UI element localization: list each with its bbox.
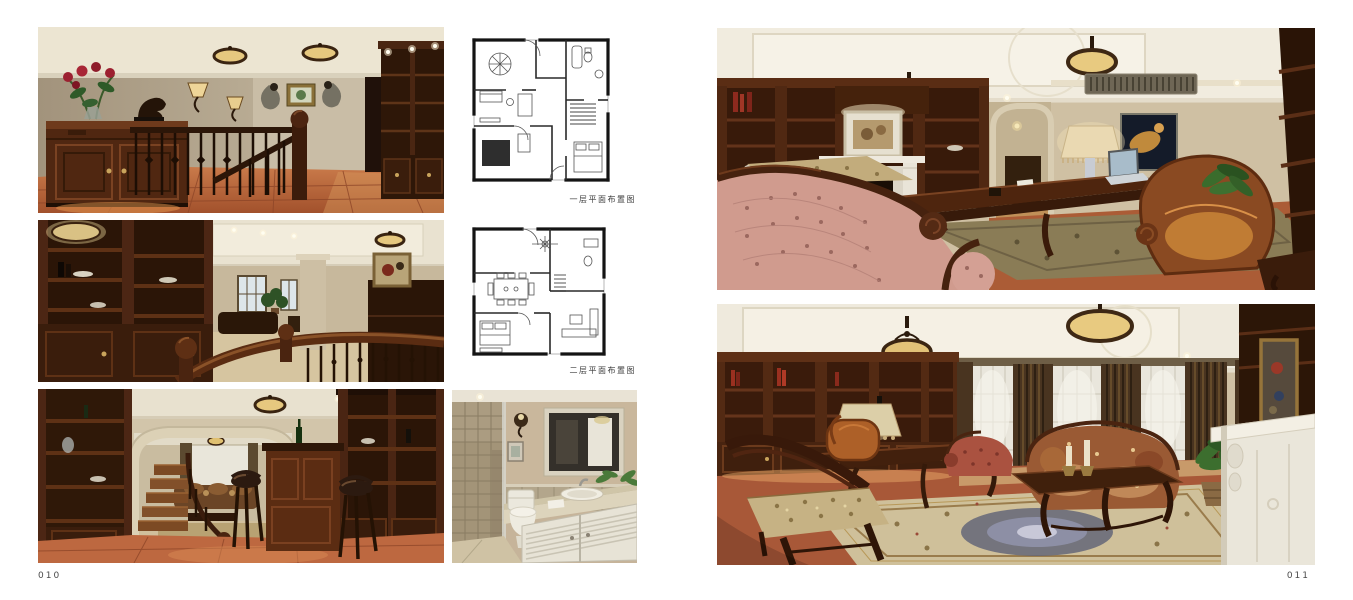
floorplan-level2 [466,221,612,363]
book-spread: 一层平面布置图 [0,0,1353,600]
framed-picture [287,84,315,106]
side-cabinet [368,280,444,382]
photo-bar-lounge [38,389,444,563]
page-number-right: 011 [1160,571,1310,581]
floorplan-level1 [466,30,616,190]
desk-chair [827,416,879,460]
built-in-bookcase [378,41,444,199]
fireplace-mantel [1211,414,1315,565]
photo-hallway-landing [38,27,444,213]
floorplan-level1-caption: 一层平面布置图 [466,194,636,205]
leather-armchair [1136,156,1274,274]
overmantel-cabinet [1239,304,1315,428]
framed-picture [374,254,410,286]
photo-bookcase-stair-hall [38,220,444,382]
floorplan-level2-caption: 二层平面布置图 [466,365,636,376]
sideboard-cabinet [46,121,188,207]
photo-living-room [717,304,1315,565]
mirror [544,408,624,476]
photo-study-room [717,28,1315,290]
page-number-left: 010 [38,571,61,581]
photo-bathroom [452,390,637,563]
ac-vent [1085,74,1197,94]
art-above-fireplace [841,104,905,156]
